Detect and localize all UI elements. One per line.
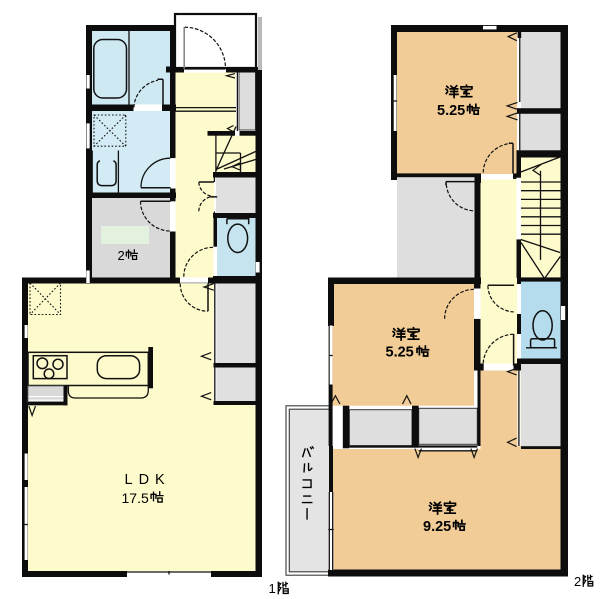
- svg-text:9.25: 9.25: [423, 519, 451, 535]
- svg-text:1: 1: [269, 581, 276, 596]
- svg-text:5.25: 5.25: [437, 103, 465, 119]
- svg-text:5.25: 5.25: [386, 345, 414, 361]
- svg-text:2: 2: [574, 574, 581, 589]
- svg-text:2: 2: [118, 248, 125, 263]
- svg-text:LDK: LDK: [125, 472, 171, 488]
- svg-text:17.5: 17.5: [122, 490, 149, 506]
